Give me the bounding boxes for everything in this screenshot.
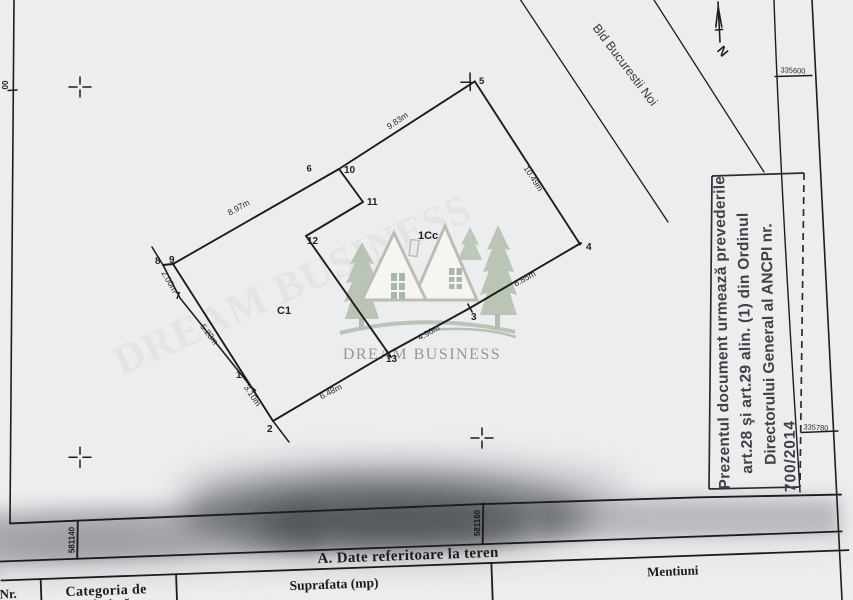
svg-text:335780: 335780 xyxy=(803,422,828,432)
svg-text:13: 13 xyxy=(386,354,398,365)
svg-text:7: 7 xyxy=(175,291,181,302)
svg-text:12: 12 xyxy=(307,236,319,247)
svg-text:Suprafata (mp): Suprafata (mp) xyxy=(289,575,378,593)
svg-text:11: 11 xyxy=(367,197,378,208)
svg-text:4: 4 xyxy=(586,242,592,253)
svg-text:700/2014: 700/2014 xyxy=(781,420,799,492)
svg-text:3: 3 xyxy=(471,312,477,323)
svg-text:9: 9 xyxy=(169,255,175,266)
svg-text:DREAM BUSINESS: DREAM BUSINESS xyxy=(343,346,501,363)
svg-text:2: 2 xyxy=(267,424,273,435)
svg-text:5: 5 xyxy=(479,76,485,87)
svg-text:1Cc: 1Cc xyxy=(418,230,438,242)
svg-text:6: 6 xyxy=(307,164,312,175)
svg-text:1: 1 xyxy=(236,370,242,381)
svg-text:00: 00 xyxy=(1,80,10,89)
svg-text:10: 10 xyxy=(344,165,356,176)
svg-text:folosinţă: folosinţă xyxy=(82,595,131,600)
svg-text:581160: 581160 xyxy=(473,509,482,536)
svg-text:581140: 581140 xyxy=(68,526,77,553)
svg-text:335600: 335600 xyxy=(780,65,805,75)
svg-text:Mentiuni: Mentiuni xyxy=(647,563,699,580)
svg-text:C1: C1 xyxy=(277,305,291,317)
svg-text:8: 8 xyxy=(155,256,161,267)
svg-text:Nr.: Nr. xyxy=(0,586,17,600)
